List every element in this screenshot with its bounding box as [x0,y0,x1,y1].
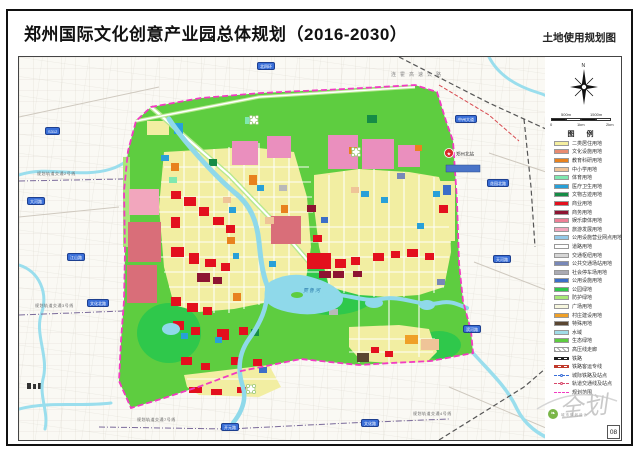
legend-swatch-intercity [554,375,569,376]
parcels-misc-shape [279,185,287,191]
legend-swatch-swatch [554,167,569,172]
legend-item: 文化设施用地 [554,148,620,157]
legend-label: 医疗卫生用地 [572,183,602,190]
legend-swatch-swatch [554,270,569,275]
legend-item: 教育科研用地 [554,156,620,165]
station-marker-shape [446,165,480,172]
parcels-red-shape [371,347,379,353]
legend-item: 防护绿地 [554,294,620,303]
metro-line-label: 规划轨道交通4号线 [413,411,452,417]
legend-item: 公共交通场站用地 [554,259,620,268]
legend-swatch-swatch [554,304,569,309]
parcels-dusty-red-shape [128,222,161,262]
road-badge: 滨河路 [463,325,481,333]
parcels-red-shape [187,303,198,312]
parcels-orange-shape [227,237,235,244]
legend-label: 社会停车场用地 [572,269,607,276]
metro-line-label: 规划轨道交通7号线 [137,417,176,423]
legend-item: 体育用地 [554,173,620,182]
legend-swatch-rail2 [554,365,569,368]
parcels-tan-shape [265,217,274,224]
legend-swatch-swatch [554,210,569,215]
parcels-red-shape [335,259,346,268]
legend-item: 医疗卫生用地 [554,182,620,191]
legend-label: 道路用地 [572,243,592,250]
legend-swatch-swatch [554,192,569,197]
interchange-icons-shape-shape [252,384,255,387]
parcels-darkgreen-shape [367,115,377,123]
legend-swatch-rail [554,357,569,360]
parcels-dusty-red-shape [271,216,301,244]
station-marker-shape: 郑州北站 [456,151,474,158]
parcels-red-shape [171,297,181,306]
parcels-orange-shape [249,175,257,185]
parcels-red-shape [184,197,196,206]
legend-item: 旅游发展用地 [554,225,620,234]
interchange-icons-shape [246,384,255,393]
interchange-icons-shape-shape [351,147,354,150]
legend-item: 文物古迹用地 [554,191,620,200]
svg-text:N: N [582,63,586,69]
parcels-red-shape [439,205,448,213]
legend-label: 公用设施营业网点用地 [572,234,622,241]
parcels-orange-shape [281,205,288,213]
parcels-blue-shape [381,197,388,203]
interchange-icons-shape-shape [252,390,255,393]
parcels-blue-shape [229,207,236,213]
parcels-red-shape [307,253,331,269]
legend-label: 交通枢纽用地 [572,252,602,259]
parcels-misc-shape [169,177,177,183]
river-system-shape [419,300,435,310]
map-background-shape [27,383,31,389]
parcels-maroon-shape [197,273,210,282]
interchange-icons-shape-shape [249,115,252,118]
legend-label: 铁路 [572,355,582,362]
parcels-darkblue-shape [443,185,451,195]
legend-label: 中小学用地 [572,166,597,173]
metro-line-label: 规划轨道交通3号线 [35,303,74,309]
legend-swatch-swatch [554,235,569,240]
scale-bar: 500m 1500m 0 1km 2km [550,112,616,128]
legend-label: 铁路客运专线 [572,363,602,370]
map-background-shape [38,383,41,389]
interchange-icons-shape-shape [357,147,360,150]
legend-swatch-swatch [554,295,569,300]
parcels-blue-shape [417,223,424,229]
river-system-shape [162,323,180,335]
road-badge: 北四环 [257,62,275,70]
parcels-blue-shape [233,253,239,259]
road-badge: S312 [45,127,60,135]
river-label: 贾鲁河 [303,287,321,294]
parcels-maroon-shape [333,271,344,278]
legend-item: 铁路 [554,354,620,363]
parcels-orange-shape [405,335,418,344]
parcels-red-shape [407,249,418,257]
road-badge: 大河路 [27,197,45,205]
legend-label: 公共交通场站用地 [572,260,612,267]
land-use-map: ★ 郑州北站 [19,57,621,440]
parcels-blue-shape [161,155,169,161]
parcels-slate-shape [397,173,405,179]
parcels-red-shape [211,389,222,395]
legend-label: 商业用地 [572,200,592,207]
parcels-red-shape [203,307,212,315]
legend-item: 广场用地 [554,302,620,311]
legend-swatch-swatch [554,227,569,232]
legend-swatch-swatch [554,201,569,206]
legend-label: 二类居住用地 [572,140,602,147]
parcels-orange-shape [171,163,179,171]
legend-item: 公用设施营业网点用地 [554,234,620,243]
station-marker-shape: ★ [447,151,452,157]
parcels-orange-shape [233,293,241,301]
parcels-red-shape [391,251,400,258]
legend-swatch-swatch [554,261,569,266]
legend-item: 生态绿地 [554,337,620,346]
map-subtitle: 土地使用规划图 [543,30,617,45]
watermark-script: 全划 [557,385,608,425]
legend-item: 公用设施用地 [554,277,620,286]
parcels-slate-shape [437,279,445,285]
parcels-tan-shape [223,197,231,203]
road-badge: 天河路 [493,255,511,263]
road-badge: 花园北路 [487,179,509,187]
legend-swatch-swatch [554,313,569,318]
legend-label: 广场用地 [572,303,592,310]
legend-swatch-swatch [554,287,569,292]
interchange-icons-shape-shape [351,153,354,156]
parcels-maroon-shape [319,271,331,278]
parcels-red-shape [171,191,181,199]
legend-swatch-swatch [554,321,569,326]
river-system-shape [365,298,383,308]
legend-swatch-striped [554,347,569,352]
legend-item: 交通枢纽用地 [554,251,620,260]
parcels-dusty-red-shape [127,265,157,303]
parcels-tan-shape [351,187,359,193]
interchange-icons-shape-shape [255,115,258,118]
parcels-red-shape [181,357,192,365]
parcels-red-shape [385,351,393,357]
parcels-red-shape [239,327,248,335]
road-badge: 文化北路 [87,299,109,307]
parcels-red-shape [199,207,209,216]
parcels-pink-shape [362,139,394,169]
legend-swatch-swatch [554,184,569,189]
legend-panel: N 500m 1500m 0 1km 2km 图 例 二类居住用地文化设施用地教… [545,57,621,440]
parcels-red-shape [171,217,180,228]
legend-swatch-swatch [554,141,569,146]
legend-item: 商业用地 [554,199,620,208]
legend-item: 娱乐康体用地 [554,216,620,225]
legend-label: 旅游发展用地 [572,226,602,233]
parcels-blue-shape [269,261,276,267]
interchange-icons-shape-shape [255,121,258,124]
legend-label: 防护绿地 [572,294,592,301]
page-number: 08 [607,425,620,439]
legend-item: 公园绿地 [554,285,620,294]
legend-items: 二类居住用地文化设施用地教育科研用地中小学用地体育用地医疗卫生用地文物古迹用地商… [554,139,620,397]
legend-swatch-swatch [554,278,569,283]
parcels-tan-shape [421,339,439,350]
parcels-red-shape [253,359,262,366]
parcels-red-shape [351,257,360,265]
legend-swatch-swatch [554,253,569,258]
parcels-orange-shape [415,145,422,151]
legend-item: 社会停车场用地 [554,268,620,277]
legend-swatch-swatch [554,158,569,163]
parcels-red-shape [213,217,224,225]
legend-label: 高压线走廊 [572,346,597,353]
legend-label: 公园绿地 [572,286,592,293]
legend-label: 水域 [572,329,582,336]
parcels-blue-shape [215,337,222,343]
legend-swatch-swatch [554,330,569,335]
interchange-icons-shape [249,115,258,124]
expressway-label: 连霍高速公路 [391,71,445,78]
road-badge: 江山路 [67,253,85,261]
parcels-blue-shape [257,185,264,191]
legend-label: 文物古迹用地 [572,191,602,198]
legend-item: 道路用地 [554,242,620,251]
legend-title: 图 例 [545,129,621,139]
parcels-red-shape [205,259,216,267]
map-background-shape [33,384,36,389]
watermark-studio-text: 城市规划设计 [561,413,588,418]
legend-label: 教育科研用地 [572,157,602,164]
interchange-icons-shape [351,147,360,156]
legend-item: 铁路客运专线 [554,362,620,371]
legend-swatch-swatch [554,149,569,154]
legend-label: 文化设施用地 [572,148,602,155]
parcels-darkblue-shape [321,217,328,223]
legend-label: 娱乐康体用地 [572,217,602,224]
parcels-red-shape [313,235,322,242]
parcels-red-shape [191,327,200,335]
parcels-red-shape [201,363,210,370]
parcels-misc-shape [357,353,369,362]
parcels-blue-shape [181,333,188,339]
legend-swatch-swatch [554,244,569,249]
parcels-pink-shape [267,136,291,158]
parcels-red-shape [226,225,235,233]
parcels-red-shape [189,253,199,264]
parcels-red-shape [171,247,184,257]
road-badge: 开元路 [221,423,239,431]
legend-label: 公用设施用地 [572,277,602,284]
legend-item: 水域 [554,328,620,337]
legend-item: 村庄建设用地 [554,311,620,320]
legend-label: 体育用地 [572,174,592,181]
parcels-pink-shape [232,141,258,165]
legend-item: 中小学用地 [554,165,620,174]
legend-item: 高压线走廊 [554,345,620,354]
legend-label: 生态绿地 [572,337,592,344]
legend-label: 特殊用地 [572,320,592,327]
parcels-blue-shape [433,191,440,197]
parcels-blue-shape [361,191,369,197]
legend-swatch-swatch [554,175,569,180]
legend-swatch-swatch [554,218,569,223]
metro-line-label: 规划轨道交通2号线 [37,171,76,177]
parcels-maroon-shape [353,271,362,277]
parcels-maroon-shape [213,277,222,284]
river-system-shape [291,292,303,298]
legend-item: 二类居住用地 [554,139,620,148]
legend-item: 商务用地 [554,208,620,217]
road-badge: 中州大道 [455,115,477,123]
compass-rose: N [567,61,601,107]
parcels-red-shape [425,253,434,260]
interchange-icons-shape-shape [246,384,249,387]
parcels-darkgreen-shape [209,159,217,166]
watermark-logo-icon: ❧ [548,409,558,419]
legend-swatch-swatch [554,338,569,343]
legend-item: 特殊用地 [554,319,620,328]
legend-label: 村庄建设用地 [572,312,602,319]
legend-label: 商务用地 [572,209,592,216]
parcels-pink-shape [129,189,159,215]
page-title: 郑州国际文化创意产业园总体规划（2016-2030） [24,20,407,45]
interchange-icons-shape-shape [249,121,252,124]
parcels-red-shape [373,253,384,261]
interchange-icons-shape-shape [246,390,249,393]
road-badge: 文化路 [361,419,379,427]
map-area[interactable]: ★ 郑州北站 连霍高速公路 贾鲁河 北四环S312大河路江山路文化北路中州大道花… [18,56,622,441]
parcels-red-shape [221,263,230,271]
parcels-maroon-shape [307,205,316,212]
interchange-icons-shape-shape [357,153,360,156]
legend-label: 城际铁路及站点 [572,372,607,379]
